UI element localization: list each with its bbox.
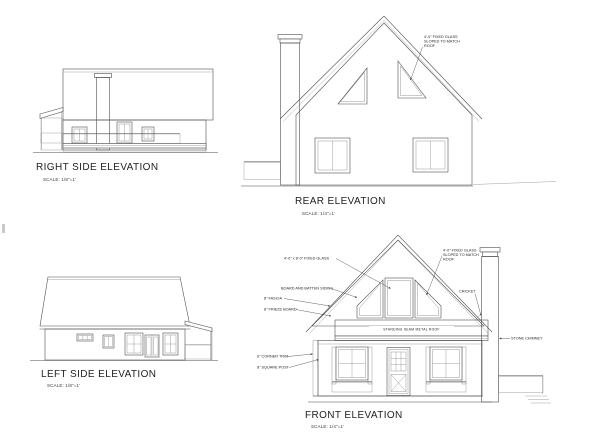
rear-chimney [278, 35, 302, 186]
elevation-plan-sheet: RIGHT SIDE ELEVATION SCALE: 1/8"=1' [0, 0, 600, 447]
annotation-board-batten-label: BOARD AND BATTEN SIDING [281, 287, 333, 291]
metal-roof-label: STANDING SEAM METAL ROOF [383, 328, 439, 332]
rear-sloped-glass-windows [338, 61, 426, 104]
annotation-stone-chimney-label: STONE CHIMNEY [511, 337, 543, 341]
left-side-elevation-drawing [28, 255, 233, 380]
leader-line [331, 289, 357, 298]
right-side-elevation-scale: SCALE: 1/8"=1' [43, 177, 76, 182]
front-elevation-drawing: STANDING SEAM METAL ROOF [240, 228, 570, 413]
page-edge-mark [2, 224, 5, 233]
annotation-corner-trim-label: 6" CORNER TRIM [257, 355, 288, 359]
front-left-window [332, 347, 372, 392]
front-porch-roof-band: STANDING SEAM METAL ROOF [335, 320, 488, 341]
annotation-sloped-glass-label: 4'-0" FIXED GLASSSLOPED TO MATCHROOF [443, 249, 479, 262]
leader-line [336, 259, 391, 289]
annotation-fixed-glass-label: 4'-0" x 8'-0" FIXED GLASS [284, 257, 330, 261]
right-side-elevation-title: RIGHT SIDE ELEVATION [36, 162, 158, 173]
rear-windows [315, 138, 448, 173]
right-side-elevation-drawing [30, 12, 230, 162]
left-side-roof [40, 277, 191, 329]
leader-line [411, 47, 423, 80]
leader-line [288, 354, 313, 357]
cricket-ridge-line [475, 314, 482, 321]
right-side-porch [40, 108, 63, 151]
front-elevation-title: FRONT ELEVATION [305, 410, 403, 421]
front-gable-windows [357, 278, 441, 318]
annotation-frieze-label: 8" FRIEZE BOARD [264, 308, 297, 312]
rear-roof [280, 16, 482, 122]
rear-elevation-title: REAR ELEVATION [295, 196, 386, 207]
rear-elevation-drawing: 4'-0" FIXED GLASSSLOPED TO MATCHROOF [230, 5, 560, 200]
rear-ground-line [241, 182, 556, 187]
rear-deck-railing [244, 162, 281, 180]
front-right-window [426, 347, 466, 392]
front-elevation-scale: SCALE: 1/4"=1' [311, 424, 344, 429]
leader-line [284, 299, 330, 307]
right-side-windows-door [72, 122, 154, 143]
left-side-porch [185, 321, 212, 360]
leader-line [296, 310, 331, 317]
front-chimney [475, 248, 501, 403]
leader-line [475, 294, 481, 316]
right-side-chimney [95, 74, 112, 151]
front-ground-line [308, 396, 492, 402]
annotation-cricket-label: CRICKET [459, 290, 476, 294]
rear-annotation-sloped-glass: 4'-0" FIXED GLASSSLOPED TO MATCHROOF [411, 35, 461, 80]
front-door [387, 348, 410, 396]
annotation-square-post-label: 8" SQUARE POST [257, 366, 290, 370]
annotation-sloped-glass-label: 4'-0" FIXED GLASSSLOPED TO MATCHROOF [424, 35, 460, 48]
left-side-elevation-scale: SCALE: 1/8"=1' [47, 383, 80, 388]
left-side-windows-doors [77, 333, 178, 357]
annotation-fascia-label: 8" FASCIA [264, 297, 282, 301]
leader-line [427, 256, 443, 295]
left-side-elevation-title: LEFT SIDE ELEVATION [41, 369, 156, 380]
front-deck [499, 376, 552, 404]
rear-elevation-scale: SCALE: 1/4"=1' [302, 211, 335, 216]
